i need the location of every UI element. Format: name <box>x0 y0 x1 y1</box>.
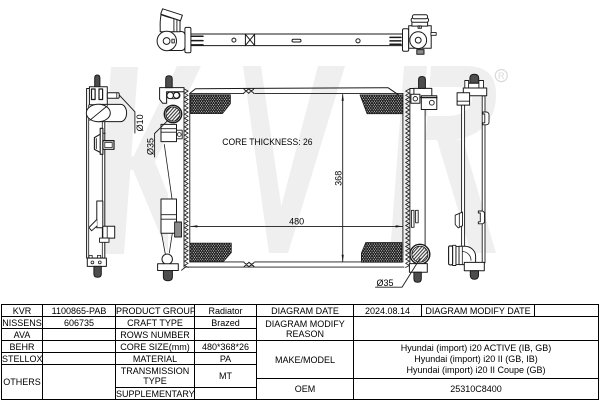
svg-text:CORE THICKNESS: 26: CORE THICKNESS: 26 <box>222 137 312 147</box>
svg-text:Ø35: Ø35 <box>146 138 156 155</box>
svg-text:368: 368 <box>333 171 343 186</box>
svg-text:480: 480 <box>289 216 304 226</box>
svg-text:R: R <box>498 71 505 81</box>
svg-text:Ø10: Ø10 <box>135 114 145 131</box>
svg-text:Ø35: Ø35 <box>377 278 394 288</box>
